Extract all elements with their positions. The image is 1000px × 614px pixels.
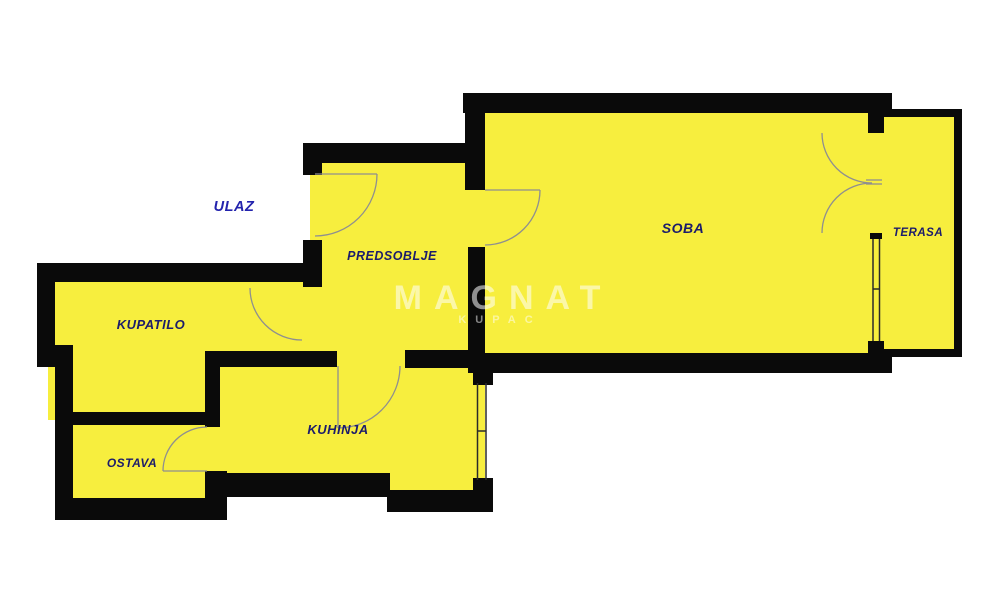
wall-segment	[473, 373, 493, 385]
wall-segment	[37, 263, 310, 282]
wall-segment	[205, 351, 337, 367]
label-terasa: TERASA	[893, 227, 943, 239]
wall-segment	[463, 93, 892, 113]
wall-segment	[68, 412, 207, 425]
watermark-line1: MAGNAT	[394, 279, 613, 317]
label-soba: SOBA	[662, 220, 704, 236]
wall-segment	[55, 345, 73, 520]
wall-segment	[405, 350, 470, 368]
label-ostava: OSTAVA	[107, 456, 157, 470]
wall-segment	[37, 263, 55, 345]
wall-segment	[468, 353, 892, 373]
wall-segment	[305, 143, 484, 163]
floor-plan: MAGNAT KUPAC ULAZ PREDSOBLJE KUPATILO SO…	[0, 0, 1000, 614]
wall-segment	[878, 109, 962, 117]
wall-segment	[878, 349, 962, 357]
label-kupatilo: KUPATILO	[117, 317, 186, 332]
label-ulaz: ULAZ	[214, 199, 255, 215]
wall-segment	[217, 473, 390, 497]
wall-segment	[954, 109, 962, 357]
floor-plan-canvas: MAGNAT KUPAC ULAZ PREDSOBLJE KUPATILO SO…	[0, 0, 1000, 614]
watermark-line2: KUPAC	[458, 314, 541, 326]
wall-segment	[55, 498, 227, 520]
label-predsoblje: PREDSOBLJE	[347, 249, 437, 263]
label-kuhinja: KUHINJA	[307, 422, 368, 437]
wall-segment	[303, 143, 322, 175]
wall-segment	[473, 478, 493, 512]
wall-segment	[465, 93, 485, 190]
wall-segment	[205, 351, 220, 427]
wall-segment	[870, 233, 882, 239]
hall-floor	[210, 270, 315, 360]
